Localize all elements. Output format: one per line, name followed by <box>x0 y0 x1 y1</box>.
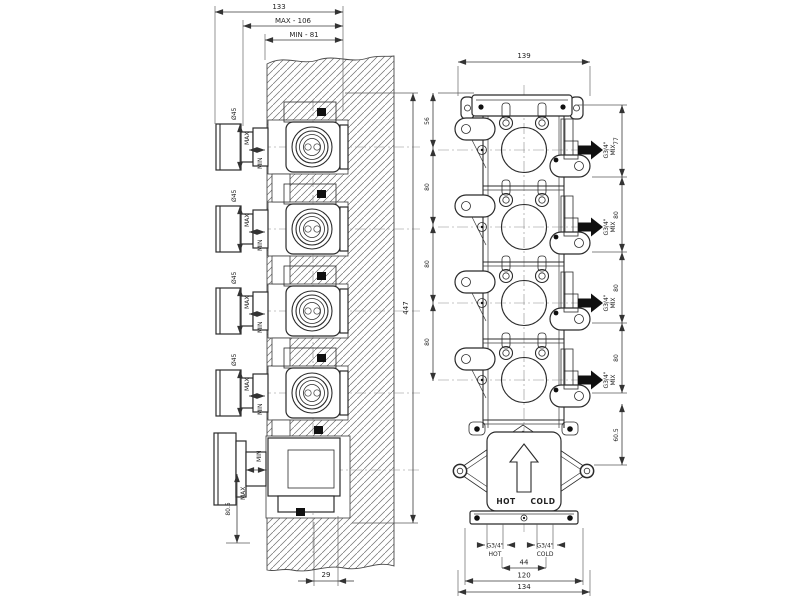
dim-overall-base-width: 134 <box>517 583 531 591</box>
dim-outlet-1: 80 <box>613 211 620 219</box>
inlet-box-assembly: HOT COLD <box>453 422 594 541</box>
label-min: MIN <box>256 451 263 462</box>
dim-outlet-top: 77 <box>613 137 620 145</box>
right-front-view: G3/4" MIX G3/4" MIX <box>424 52 627 596</box>
label-max: MAX <box>244 378 251 391</box>
pipe-chase <box>272 174 290 202</box>
handle <box>214 433 236 505</box>
top-mounting-plate <box>461 95 583 119</box>
label-max: MAX <box>240 487 247 500</box>
outlet-thread: G3/4" <box>603 294 610 311</box>
inlet-hot-thread: G3/4" <box>486 543 503 550</box>
valve-installation-drawing: Ø45 MAX MIN Ø45 MAX MIN <box>0 0 800 600</box>
left-section-view: Ø45 MAX MIN Ø45 MAX MIN <box>214 3 420 586</box>
outlet-thread: G3/4" <box>603 371 610 388</box>
dim-bottom-inset: 29 <box>322 571 331 579</box>
inlet-cold-thread: G3/4" <box>536 543 553 550</box>
outlet-thread: G3/4" <box>603 218 610 235</box>
valve-unit-front-4: G3/4" MIX <box>438 333 617 407</box>
outlet-flow: MIX <box>610 221 617 232</box>
label-min: MIN <box>257 240 264 251</box>
dim-inlet-spacing: 44 <box>520 559 529 567</box>
dim-outlet-3: 80 <box>613 354 620 362</box>
valve-unit-front-3: G3/4" MIX <box>438 256 617 330</box>
pipe-chase <box>272 256 290 284</box>
pipe-chase <box>272 420 290 436</box>
label-min: MIN <box>257 322 264 333</box>
inlet-hot-label: HOT <box>489 551 502 558</box>
label-max: MAX <box>244 296 251 309</box>
dim-knob-diameter: Ø45 <box>231 107 238 120</box>
dim-min-depth: MIN - 81 <box>289 31 318 39</box>
dim-spacing-3: 80 <box>424 338 431 346</box>
dim-spacing-2: 80 <box>424 260 431 268</box>
dim-bottom-spacing: 60.5 <box>613 428 620 442</box>
label-max: MAX <box>244 132 251 145</box>
outlet-flow: MIX <box>610 144 617 155</box>
outlet-thread: G3/4" <box>603 141 610 158</box>
inlet-cold-label: COLD <box>537 551 554 558</box>
dim-overall-depth: 133 <box>272 3 285 11</box>
pipe-chase <box>272 338 290 366</box>
label-max: MAX <box>244 214 251 227</box>
dim-spacing-1: 80 <box>424 183 431 191</box>
cold-label: COLD <box>531 497 556 506</box>
outlet-flow: MIX <box>610 297 617 308</box>
valve-unit-front-2: G3/4" MIX <box>438 180 617 254</box>
outlet-flow: MIX <box>610 374 617 385</box>
dim-outlet-2: 80 <box>613 284 620 292</box>
label-min: MIN <box>257 404 264 415</box>
label-min: MIN <box>257 158 264 169</box>
dim-knob-diameter: Ø45 <box>231 271 238 284</box>
dim-bottom-offset: 80.5 <box>225 502 232 516</box>
dim-knob-diameter: Ø45 <box>231 353 238 366</box>
dim-overall-width: 139 <box>517 52 530 60</box>
hot-label: HOT <box>496 497 516 506</box>
dim-overall-height: 447 <box>402 301 410 314</box>
dim-rail-width: 120 <box>517 572 530 580</box>
dim-max-depth: MAX - 106 <box>275 17 312 25</box>
dim-top-spacing: 56 <box>424 117 431 125</box>
technical-drawing-page: Ø45 MAX MIN Ø45 MAX MIN <box>0 0 800 600</box>
dim-knob-diameter: Ø45 <box>231 189 238 202</box>
